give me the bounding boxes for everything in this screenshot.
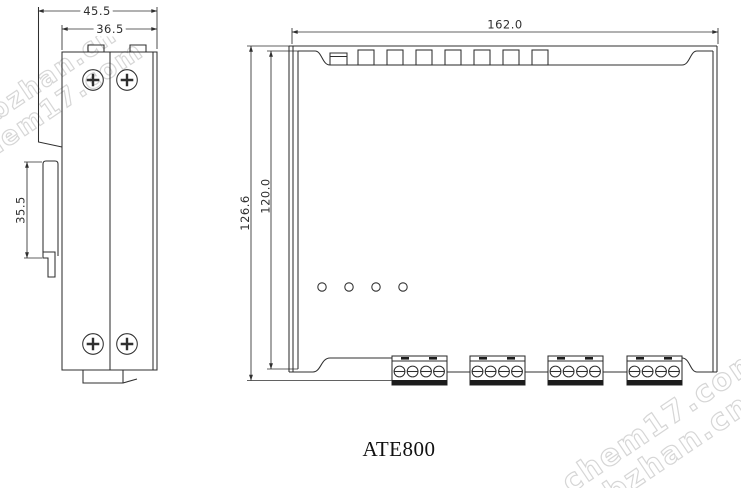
watermark-top-left: ybzhan.cn chem17.com xyxy=(0,12,149,175)
dimension-label: 36.5 xyxy=(96,22,124,36)
terminal-block xyxy=(627,356,682,385)
dimension-label: 45.5 xyxy=(83,4,111,18)
terminal-block xyxy=(392,356,447,385)
front-view: 162.0 126.6 120.0 xyxy=(238,18,718,386)
dimension-drawing-page: ybzhan.cn chem17.com chem17.com ybzhan.c… xyxy=(0,0,741,488)
side-screw xyxy=(83,334,104,355)
terminal-blocks xyxy=(392,356,682,385)
side-din-clip-body xyxy=(43,161,58,256)
front-dim-width: 162.0 xyxy=(292,18,718,45)
front-top-vent-shelf xyxy=(298,51,713,65)
terminal-block xyxy=(470,356,525,385)
led-indicator xyxy=(318,283,326,291)
side-din-clip-hook xyxy=(43,252,55,277)
dimension-label: 162.0 xyxy=(487,18,522,32)
dimension-label: 126.6 xyxy=(238,195,252,230)
side-screw xyxy=(117,334,138,355)
model-title: ATE800 xyxy=(363,437,436,462)
dimension-label: 120.0 xyxy=(259,178,273,213)
side-bottom-foot xyxy=(83,370,137,383)
led-indicator xyxy=(345,283,353,291)
extension-line xyxy=(247,46,440,381)
side-dim-clip-height: 35.5 xyxy=(14,162,43,258)
front-vent-tab xyxy=(330,53,347,65)
led-indicator xyxy=(372,283,380,291)
front-dim-body-height: 120.0 xyxy=(259,51,299,369)
dimension-drawing: ybzhan.cn chem17.com chem17.com ybzhan.c… xyxy=(0,0,741,488)
led-indicator xyxy=(399,283,407,291)
terminal-block xyxy=(548,356,603,385)
led-indicators xyxy=(318,283,407,291)
front-vent-ribs xyxy=(358,50,548,65)
dimension-label: 35.5 xyxy=(14,196,28,224)
